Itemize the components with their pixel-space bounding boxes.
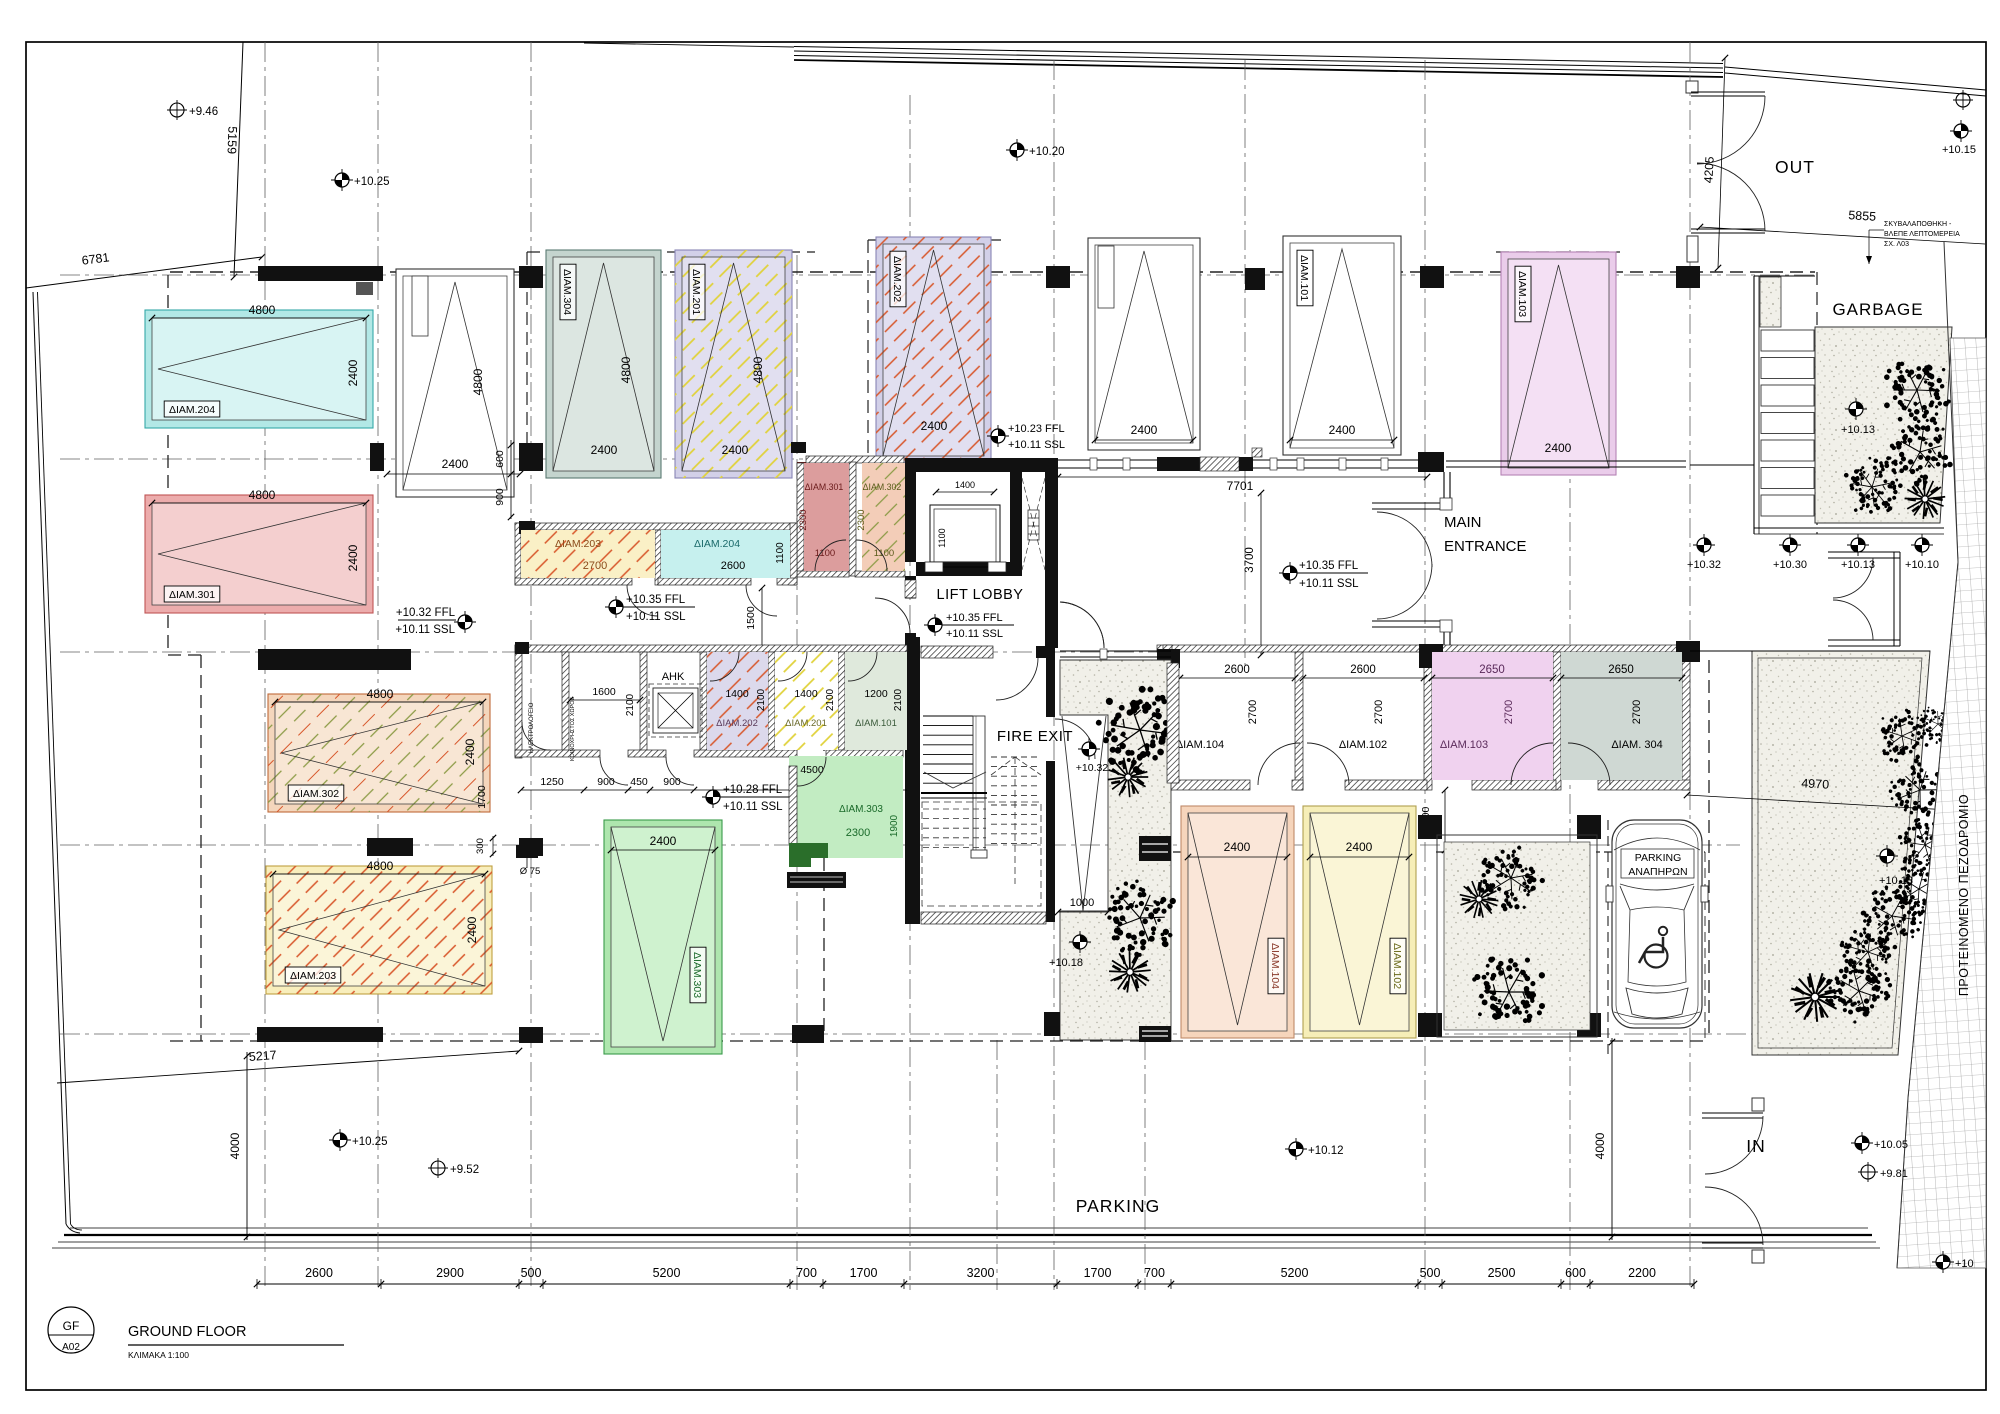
svg-text:2600: 2600	[721, 560, 745, 572]
svg-text:+10.25: +10.25	[352, 1136, 388, 1148]
svg-text:MAIN: MAIN	[1444, 514, 1482, 531]
svg-text:+10.20: +10.20	[1029, 146, 1065, 158]
svg-text:+10.32 FFL: +10.32 FFL	[396, 607, 456, 619]
svg-text:4970: 4970	[1801, 776, 1830, 791]
svg-text:900: 900	[663, 776, 681, 788]
svg-text:450: 450	[630, 776, 648, 788]
svg-text:2400: 2400	[1545, 441, 1572, 455]
svg-text:+10.25: +10.25	[354, 176, 390, 188]
svg-text:2400: 2400	[465, 916, 479, 943]
svg-text:1700: 1700	[476, 785, 488, 809]
svg-text:OUT: OUT	[1775, 157, 1815, 177]
svg-text:1000: 1000	[1070, 897, 1094, 909]
svg-text:+10.35 FFL: +10.35 FFL	[1299, 560, 1359, 572]
svg-text:ΣΚΥΒΑΛΑΠΟΘΗΚΗ -: ΣΚΥΒΑΛΑΠΟΘΗΚΗ -	[1884, 221, 1952, 228]
svg-text:+10.13: +10.13	[1841, 424, 1875, 436]
svg-text:+9.81: +9.81	[1880, 1168, 1908, 1180]
svg-text:2100: 2100	[756, 688, 767, 711]
svg-text:2500: 2500	[1488, 1266, 1516, 1280]
svg-text:4800: 4800	[249, 303, 276, 317]
svg-text:2400: 2400	[442, 457, 469, 471]
svg-text:2400: 2400	[722, 443, 749, 457]
svg-text:4800: 4800	[367, 859, 394, 873]
svg-text:GF: GF	[63, 1319, 80, 1333]
svg-text:2100: 2100	[893, 688, 904, 711]
svg-text:ΣΧ. Λ03: ΣΧ. Λ03	[1884, 241, 1909, 248]
svg-text:600: 600	[494, 450, 506, 468]
svg-text:+10.35 FFL: +10.35 FFL	[946, 612, 1003, 624]
svg-text:Ø 75: Ø 75	[520, 866, 541, 877]
svg-text:2400: 2400	[463, 738, 477, 765]
svg-text:900: 900	[494, 488, 506, 506]
svg-text:+10.23 FFL: +10.23 FFL	[1008, 423, 1065, 435]
svg-text:2300: 2300	[856, 509, 867, 530]
svg-text:2400: 2400	[346, 544, 360, 571]
svg-text:2400: 2400	[921, 419, 948, 433]
svg-text:+9.46: +9.46	[189, 106, 218, 118]
svg-text:2600: 2600	[1350, 664, 1376, 676]
svg-text:+10.12: +10.12	[1308, 1145, 1344, 1157]
svg-text:2400: 2400	[650, 834, 677, 848]
svg-text:2650: 2650	[1608, 664, 1634, 676]
svg-text:+10.13: +10.13	[1841, 559, 1875, 571]
svg-text:GARBAGE: GARBAGE	[1832, 300, 1923, 319]
svg-text:2300: 2300	[798, 509, 809, 530]
svg-text:LIFT LOBBY: LIFT LOBBY	[937, 587, 1024, 603]
svg-text:ΒΛΕΠΕ ΛΕΠΤΟΜΕΡΕΙΑ: ΒΛΕΠΕ ΛΕΠΤΟΜΕΡΕΙΑ	[1884, 231, 1960, 238]
svg-text:ΔΙΑΜ.301: ΔΙΑΜ.301	[805, 482, 844, 492]
svg-text:2400: 2400	[591, 443, 618, 457]
svg-text:ΔΙΑΜ.301: ΔΙΑΜ.301	[169, 589, 215, 601]
svg-text:IN: IN	[1746, 1136, 1766, 1156]
svg-text:ΔΙΑΜ. 304: ΔΙΑΜ. 304	[1611, 739, 1662, 751]
svg-text:+10.11 SSL: +10.11 SSL	[1008, 439, 1065, 451]
svg-text:1200: 1200	[864, 688, 888, 700]
svg-text:ΔΙΑΜ.104: ΔΙΑΜ.104	[1269, 943, 1281, 989]
svg-text:GROUND FLOOR: GROUND FLOOR	[128, 1324, 246, 1340]
svg-text:2100: 2100	[825, 688, 836, 711]
svg-text:ΗΛΕΚΤΡΟΛΟΓΕΙΟ: ΗΛΕΚΤΡΟΛΟΓΕΙΟ	[529, 702, 535, 753]
svg-text:4800: 4800	[751, 356, 765, 383]
svg-text:2400: 2400	[1329, 423, 1356, 437]
svg-text:7701: 7701	[1227, 479, 1254, 493]
svg-text:ΔΙΑΜ.303: ΔΙΑΜ.303	[839, 804, 883, 815]
svg-text:2600: 2600	[305, 1266, 333, 1280]
svg-text:ΔΙΑΜ.203: ΔΙΑΜ.203	[555, 538, 601, 550]
svg-text:+10.11 SSL: +10.11 SSL	[626, 611, 686, 623]
svg-text:FIRE EXIT: FIRE EXIT	[997, 728, 1073, 745]
svg-text:2200: 2200	[1628, 1266, 1656, 1280]
svg-text:ΔΙΑΜ.101: ΔΙΑΜ.101	[1298, 255, 1310, 301]
svg-text:PARKING: PARKING	[1635, 852, 1681, 864]
svg-text:+9.52: +9.52	[450, 1164, 479, 1176]
svg-text:900: 900	[597, 776, 615, 788]
svg-text:+10.11 SSL: +10.11 SSL	[723, 801, 783, 813]
svg-text:1500: 1500	[745, 606, 757, 630]
svg-text:+10.05: +10.05	[1874, 1139, 1908, 1151]
svg-text:ΔΙΑΜ.302: ΔΙΑΜ.302	[863, 482, 902, 492]
svg-text:ΔΙΑΜ.102: ΔΙΑΜ.102	[1391, 943, 1403, 989]
svg-text:+10.13: +10.13	[1879, 875, 1913, 887]
svg-text:2700: 2700	[583, 560, 607, 572]
svg-text:4000: 4000	[228, 1132, 242, 1159]
svg-text:1600: 1600	[592, 686, 616, 698]
svg-text:5217: 5217	[248, 1048, 277, 1064]
svg-text:ENTRANCE: ENTRANCE	[1444, 538, 1527, 555]
svg-text:ΔΙΑΜ.303: ΔΙΑΜ.303	[691, 952, 703, 998]
svg-text:+10.32: +10.32	[1687, 559, 1721, 571]
svg-text:ΔΙΑΜ.103: ΔΙΑΜ.103	[1516, 271, 1528, 317]
svg-text:2400: 2400	[1224, 840, 1251, 854]
svg-text:1700: 1700	[1084, 1266, 1112, 1280]
svg-text:1900: 1900	[889, 814, 900, 837]
svg-text:3700: 3700	[1244, 547, 1256, 573]
svg-text:1100: 1100	[775, 542, 786, 564]
svg-text:2650: 2650	[1479, 664, 1505, 676]
svg-text:ΔΙΑΜ.204: ΔΙΑΜ.204	[694, 538, 740, 550]
svg-text:700: 700	[1144, 1266, 1165, 1280]
svg-text:+10.30: +10.30	[1773, 559, 1807, 571]
svg-text:1400: 1400	[955, 480, 975, 490]
svg-text:2700: 2700	[1503, 700, 1515, 724]
svg-text:2300: 2300	[846, 827, 870, 839]
svg-text:1400: 1400	[794, 688, 818, 700]
svg-text:+10.35 FFL: +10.35 FFL	[626, 594, 686, 606]
svg-text:ΚΟΙΝΟΧΡΗΣΤΟΣ ΧΩΡΟΣ: ΚΟΙΝΟΧΡΗΣΤΟΣ ΧΩΡΟΣ	[570, 696, 576, 760]
svg-text:1100: 1100	[937, 528, 947, 547]
svg-text:4800: 4800	[619, 356, 633, 383]
svg-text:ΔΙΑΜ.103: ΔΙΑΜ.103	[1440, 739, 1488, 751]
svg-text:2400: 2400	[346, 359, 360, 386]
svg-text:1400: 1400	[725, 688, 749, 700]
svg-text:3200: 3200	[967, 1266, 995, 1280]
svg-text:4800: 4800	[249, 488, 276, 502]
svg-text:5855: 5855	[1848, 208, 1877, 224]
svg-text:4000: 4000	[1593, 1132, 1607, 1159]
svg-text:4205: 4205	[1701, 156, 1716, 184]
svg-text:ΔΙΑΜ.304: ΔΙΑΜ.304	[561, 269, 573, 315]
svg-text:5200: 5200	[1281, 1266, 1309, 1280]
svg-text:1700: 1700	[850, 1266, 878, 1280]
svg-text:+10.15: +10.15	[1942, 144, 1976, 156]
svg-text:ΑΝΑΠΗΡΩΝ: ΑΝΑΠΗΡΩΝ	[1628, 866, 1687, 878]
svg-text:+10: +10	[1955, 1258, 1974, 1270]
svg-text:4800: 4800	[367, 687, 394, 701]
svg-text:ΔΙΑΜ.204: ΔΙΑΜ.204	[169, 404, 215, 416]
svg-text:ΔΙΑΜ.202: ΔΙΑΜ.202	[716, 718, 758, 729]
svg-text:A02: A02	[62, 1342, 80, 1353]
svg-text:ΔΙΑΜ.104: ΔΙΑΜ.104	[1176, 739, 1224, 751]
svg-text:2700: 2700	[1631, 700, 1643, 724]
svg-text:ΔΙΑΜ.201: ΔΙΑΜ.201	[690, 269, 702, 315]
svg-text:2700: 2700	[1373, 700, 1385, 724]
svg-text:AHK: AHK	[662, 671, 685, 683]
svg-text:ΔΙΑΜ.202: ΔΙΑΜ.202	[891, 256, 903, 302]
svg-text:2400: 2400	[1346, 840, 1373, 854]
svg-text:+10.28 FFL: +10.28 FFL	[723, 784, 783, 796]
svg-text:600: 600	[1565, 1266, 1586, 1280]
svg-text:+10.10: +10.10	[1905, 559, 1939, 571]
svg-text:2900: 2900	[436, 1266, 464, 1280]
svg-text:2700: 2700	[1247, 700, 1259, 724]
svg-text:ΔΙΑΜ.203: ΔΙΑΜ.203	[290, 970, 336, 982]
svg-text:2100: 2100	[625, 693, 636, 716]
svg-text:ΚΛΙΜΑΚΑ 1:100: ΚΛΙΜΑΚΑ 1:100	[128, 1350, 189, 1360]
svg-text:+10.11 SSL: +10.11 SSL	[395, 624, 455, 636]
svg-text:1250: 1250	[540, 776, 564, 788]
svg-text:PARKING: PARKING	[1076, 1196, 1160, 1216]
svg-text:700: 700	[796, 1266, 817, 1280]
svg-text:ΔΙΑΜ.102: ΔΙΑΜ.102	[1339, 739, 1387, 751]
svg-text:5200: 5200	[653, 1266, 681, 1280]
svg-text:ΔΙΑΜ.101: ΔΙΑΜ.101	[855, 718, 897, 729]
svg-text:ΠΡΟΤΕΙΝΟΜΕΝΟ ΠΕΖΟΔΡΟΜΙΟ: ΠΡΟΤΕΙΝΟΜΕΝΟ ΠΕΖΟΔΡΟΜΙΟ	[1957, 794, 1971, 996]
svg-text:ΔΙΑΜ.201: ΔΙΑΜ.201	[785, 718, 827, 729]
svg-text:ΔΙΑΜ.302: ΔΙΑΜ.302	[293, 788, 339, 800]
svg-text:+10.18: +10.18	[1049, 957, 1083, 969]
svg-text:5159: 5159	[225, 126, 240, 154]
svg-text:+10.32: +10.32	[1076, 762, 1109, 774]
svg-text:4800: 4800	[471, 368, 485, 395]
svg-text:500: 500	[1420, 1266, 1441, 1280]
svg-text:+10.11 SSL: +10.11 SSL	[1299, 578, 1359, 590]
svg-text:500: 500	[521, 1266, 542, 1280]
svg-text:+10.11 SSL: +10.11 SSL	[946, 628, 1003, 640]
svg-text:2600: 2600	[1224, 664, 1250, 676]
svg-text:2400: 2400	[1131, 423, 1158, 437]
svg-text:300: 300	[475, 838, 486, 854]
